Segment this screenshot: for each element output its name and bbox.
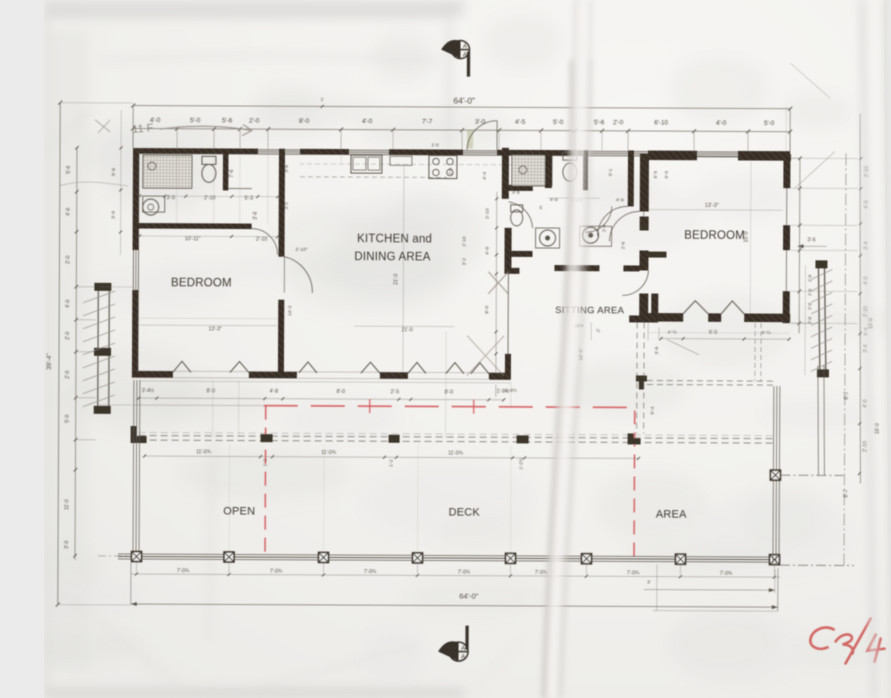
svg-text:7'-0¾: 7'-0¾ [364, 569, 377, 575]
svg-text:2'-0: 2'-0 [602, 224, 607, 232]
svg-text:DECK: DECK [449, 507, 481, 519]
svg-text:2'-10: 2'-10 [462, 236, 467, 247]
svg-text:5'-6: 5'-6 [111, 168, 117, 176]
svg-text:2'-0: 2'-0 [807, 302, 812, 310]
svg-text:2'-0: 2'-0 [807, 288, 812, 296]
svg-text:11'-0¾: 11'-0¾ [321, 450, 337, 456]
svg-text:7'-0¾: 7'-0¾ [627, 570, 640, 576]
svg-text:21'-0: 21'-0 [393, 274, 399, 285]
svg-text:7'-7: 7'-7 [422, 118, 433, 125]
svg-text:1'-2: 1'-2 [388, 459, 393, 467]
svg-text:18'-0: 18'-0 [875, 423, 881, 434]
svg-text:3'-6: 3'-6 [654, 346, 660, 354]
svg-text:3'-0: 3'-0 [111, 211, 117, 219]
svg-text:5'-0: 5'-0 [65, 414, 71, 422]
svg-text:5'-4: 5'-4 [650, 406, 656, 414]
svg-text:2'-0: 2'-0 [65, 331, 71, 339]
svg-text:4'-5: 4'-5 [515, 119, 526, 126]
svg-text:4'-0: 4'-0 [484, 246, 490, 254]
svg-text:4'-8: 4'-8 [270, 389, 279, 395]
svg-text:8'-0: 8'-0 [484, 305, 490, 313]
svg-text:BEDROOM: BEDROOM [684, 230, 745, 242]
svg-text:3'-0: 3'-0 [64, 540, 70, 548]
svg-text:39'-4": 39'-4" [46, 353, 53, 370]
svg-text:1'-2½: 1'-2½ [517, 458, 523, 470]
svg-text:14'-2: 14'-2 [287, 305, 293, 316]
svg-text:8'-7: 8'-7 [844, 391, 850, 399]
svg-text:DINING AREA: DINING AREA [354, 251, 431, 263]
svg-text:4'-6: 4'-6 [66, 207, 72, 215]
svg-text:64'-0": 64'-0" [453, 96, 475, 106]
svg-text:2'-0: 2'-0 [65, 255, 71, 263]
svg-text:13'-3": 13'-3" [209, 326, 222, 332]
svg-text:11 F: 11 F [132, 122, 154, 136]
svg-text:10'-11": 10'-11" [185, 236, 201, 242]
svg-text:5'-6: 5'-6 [594, 119, 605, 126]
svg-text:3'-6: 3'-6 [253, 211, 259, 219]
svg-text:8'-0: 8'-0 [299, 118, 310, 125]
svg-text:7'-0¾: 7'-0¾ [458, 570, 471, 576]
svg-text:3'-4½: 3'-4½ [142, 387, 155, 394]
svg-text:8'-7: 8'-7 [843, 489, 849, 497]
svg-text:4'-9: 4'-9 [616, 197, 624, 203]
svg-text:4'-4: 4'-4 [482, 171, 488, 179]
svg-text:1'-0: 1'-0 [431, 142, 439, 147]
svg-text:KITCHEN and: KITCHEN and [357, 233, 432, 245]
svg-text:6'-9: 6'-9 [664, 170, 669, 178]
svg-text:5'-6: 5'-6 [66, 165, 72, 173]
svg-text:2'-10: 2'-10 [485, 208, 491, 219]
svg-text:AREA: AREA [656, 509, 687, 521]
svg-text:21'-0: 21'-0 [402, 327, 413, 333]
svg-text:3'-2: 3'-2 [461, 257, 466, 265]
svg-text:4'-½: 4'-½ [762, 329, 771, 336]
svg-text:6'-10: 6'-10 [654, 120, 668, 127]
svg-text:2'-5: 2'-5 [391, 389, 400, 395]
svg-text:5'-0: 5'-0 [553, 119, 564, 126]
svg-text:7'-0¾: 7'-0¾ [535, 570, 548, 576]
svg-text:6'-9: 6'-9 [653, 170, 658, 178]
svg-text:3'-0: 3'-0 [475, 119, 486, 126]
svg-text:3'-6: 3'-6 [284, 165, 289, 173]
svg-text:5'-6: 5'-6 [222, 117, 233, 124]
svg-text:13'-3": 13'-3" [705, 203, 719, 209]
svg-text:11'-0: 11'-0 [64, 499, 70, 510]
svg-text:2'-0: 2'-0 [613, 119, 624, 126]
svg-text:2'-0: 2'-0 [65, 370, 71, 378]
svg-text:3': 3' [647, 580, 651, 585]
svg-text:4'-0: 4'-0 [65, 299, 71, 307]
svg-text:4'-0: 4'-0 [716, 120, 727, 127]
svg-text:3'-2: 3'-2 [284, 202, 289, 210]
svg-text:1': 1' [321, 97, 325, 102]
svg-text:S: S [539, 205, 542, 210]
svg-text:4'-9: 4'-9 [512, 190, 520, 195]
svg-text:4'-½: 4'-½ [668, 329, 677, 336]
svg-text:2'-6: 2'-6 [621, 241, 626, 249]
svg-text:7'-0¾: 7'-0¾ [720, 571, 733, 577]
svg-text:1'-2: 1'-2 [262, 458, 267, 466]
svg-text:7'-0¾: 7'-0¾ [270, 569, 283, 575]
svg-text:64'-0": 64'-0" [459, 592, 478, 601]
svg-text:8'-0: 8'-0 [207, 388, 216, 394]
svg-text:2'-10: 2'-10 [256, 237, 268, 243]
svg-text:11'-0¾: 11'-0¾ [196, 449, 212, 455]
svg-text:3'-6: 3'-6 [807, 237, 815, 243]
svg-text:½: ½ [596, 327, 600, 333]
svg-text:2'-0: 2'-0 [807, 316, 812, 324]
svg-text:4'-0: 4'-0 [362, 118, 373, 125]
svg-text:7'-0¾: 7'-0¾ [177, 568, 190, 574]
svg-text:2'-0: 2'-0 [249, 118, 260, 125]
svg-text:11'-0¾: 11'-0¾ [448, 451, 464, 457]
svg-text:OPEN: OPEN [223, 505, 255, 517]
svg-text:2'-0: 2'-0 [807, 274, 812, 282]
svg-text:2'-0: 2'-0 [448, 167, 453, 175]
svg-text:8'-0: 8'-0 [337, 389, 346, 395]
svg-text:9'-1: 9'-1 [608, 168, 613, 176]
svg-text:5'-0: 5'-0 [190, 117, 201, 124]
svg-text:7'-6: 7'-6 [229, 169, 235, 177]
svg-text:BEDROOM: BEDROOM [171, 277, 232, 289]
svg-text:5'-0: 5'-0 [764, 120, 775, 127]
svg-text:2'-10": 2'-10" [295, 247, 308, 253]
